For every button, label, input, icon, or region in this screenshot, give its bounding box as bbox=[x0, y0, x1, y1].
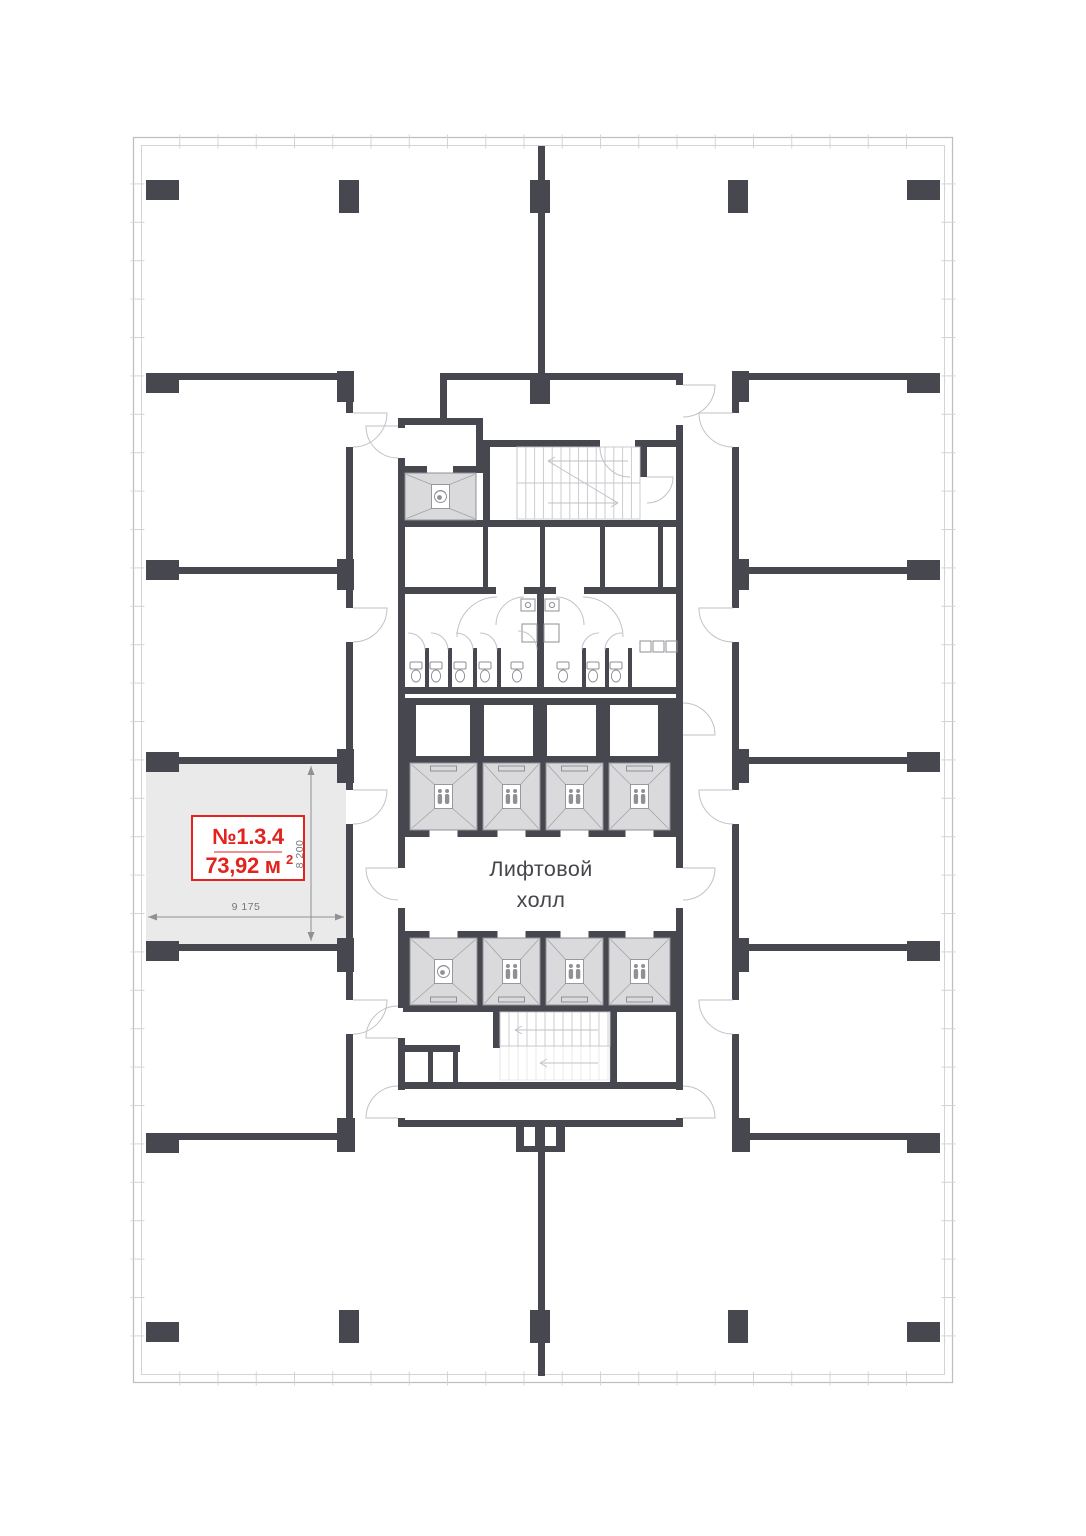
dimension-width: 9 175 bbox=[232, 901, 261, 913]
toilet-tank bbox=[587, 662, 599, 669]
toilet-tank bbox=[479, 662, 491, 669]
dimension-height: 8 200 bbox=[294, 840, 306, 869]
elevator-icon-box bbox=[631, 785, 649, 809]
elevator-shaft bbox=[609, 763, 670, 830]
elevator-passenger-icon bbox=[569, 794, 573, 804]
elevator-passenger-icon bbox=[569, 969, 573, 979]
stairwell-bottom bbox=[500, 1012, 610, 1080]
elevator-passenger-icon bbox=[506, 789, 510, 793]
toilet-tank bbox=[430, 662, 442, 669]
toilet-bowl bbox=[431, 670, 440, 682]
elevator-passenger-icon bbox=[569, 964, 573, 968]
door-arc bbox=[457, 597, 497, 637]
elevator-passenger-icon bbox=[569, 789, 573, 793]
elevator-passenger-icon bbox=[506, 969, 510, 979]
elevator-shaft bbox=[410, 763, 477, 830]
door-arc bbox=[600, 447, 630, 477]
elevator-passenger-icon bbox=[641, 789, 645, 793]
elevator-passenger-icon bbox=[634, 789, 638, 793]
elevator-icon-box bbox=[566, 785, 584, 809]
urinal-icon bbox=[666, 641, 677, 652]
door-arc bbox=[582, 633, 599, 650]
toilet-icon bbox=[511, 662, 523, 682]
urinal-icon bbox=[640, 641, 651, 652]
elevator-passenger-icon bbox=[634, 969, 638, 979]
elevator-icon-box bbox=[566, 960, 584, 984]
door-arc bbox=[353, 608, 387, 642]
center-wall-top bbox=[538, 146, 545, 374]
sink-icon bbox=[521, 599, 535, 611]
center-wall-bottom bbox=[538, 1150, 545, 1376]
unit-number: №1.3.4 bbox=[212, 824, 285, 849]
door-arc bbox=[353, 1000, 387, 1034]
toilet-bowl bbox=[558, 670, 567, 682]
fire-elevator-shaft bbox=[410, 938, 477, 1005]
elevator-shaft bbox=[609, 938, 670, 1005]
toilet-bowl bbox=[588, 670, 597, 682]
toilet-tank bbox=[410, 662, 422, 669]
door-arc bbox=[683, 868, 715, 900]
door-arc bbox=[496, 597, 524, 625]
door-arc bbox=[366, 1006, 398, 1038]
bottom-shaft bbox=[516, 1120, 565, 1152]
elevator-passenger-icon bbox=[634, 794, 638, 804]
elevator-passenger-icon bbox=[576, 969, 580, 979]
vanity-counter bbox=[544, 624, 559, 642]
door-arc bbox=[683, 385, 715, 417]
toilet-bowl bbox=[512, 670, 521, 682]
elevator-passenger-icon bbox=[438, 789, 442, 793]
floor-plan: №1.3.4 73,92 м 2 8 200 9 175 Лифтовой хо… bbox=[0, 0, 1086, 1536]
floor-plan-page: №1.3.4 73,92 м 2 8 200 9 175 Лифтовой хо… bbox=[0, 0, 1086, 1536]
fire-elevator-shaft bbox=[405, 473, 476, 520]
toilet-tank bbox=[557, 662, 569, 669]
toilet-tank bbox=[610, 662, 622, 669]
door-arc bbox=[683, 703, 715, 735]
vanity-counter bbox=[522, 624, 537, 642]
toilet-icon bbox=[410, 662, 422, 682]
elevator-shaft bbox=[483, 763, 540, 830]
door-arc bbox=[556, 597, 584, 625]
door-arc bbox=[699, 413, 733, 447]
sink-drain bbox=[549, 602, 554, 607]
toilet-bowl bbox=[611, 670, 620, 682]
elevator-passenger-icon bbox=[576, 964, 580, 968]
elevator-icon-box bbox=[503, 960, 521, 984]
elevator-shaft bbox=[546, 938, 603, 1005]
elevator-passenger-icon bbox=[506, 964, 510, 968]
elevator-passenger-icon bbox=[513, 969, 517, 979]
elevator-passenger-icon bbox=[445, 789, 449, 793]
elevator-passenger-icon bbox=[641, 964, 645, 968]
toilet-icon bbox=[454, 662, 466, 682]
toilet-bowl bbox=[480, 670, 489, 682]
elevator-icon-box bbox=[435, 785, 453, 809]
elevator-icon-box bbox=[631, 960, 649, 984]
elevator-passenger-icon bbox=[513, 794, 517, 804]
door-arc bbox=[366, 1086, 398, 1118]
unit-area: 73,92 м bbox=[205, 853, 280, 878]
door-arc bbox=[699, 608, 733, 642]
door-arc bbox=[699, 790, 733, 824]
door-arc bbox=[518, 631, 537, 650]
sink-icon bbox=[545, 599, 559, 611]
stairwell-top bbox=[517, 447, 640, 519]
elevator-passenger-icon bbox=[506, 794, 510, 804]
toilet-icon bbox=[430, 662, 442, 682]
elevator-icon-box bbox=[503, 785, 521, 809]
door-arc bbox=[480, 633, 497, 650]
fire-elevator-icon bbox=[437, 495, 442, 500]
door-arc bbox=[366, 868, 398, 900]
toilet-icon bbox=[610, 662, 622, 682]
elevator-passenger-icon bbox=[576, 794, 580, 804]
walls-and-columns bbox=[146, 146, 940, 1376]
elevator-passenger-icon bbox=[513, 789, 517, 793]
toilet-icon bbox=[479, 662, 491, 682]
elevator-passenger-icon bbox=[445, 794, 449, 804]
door-arc bbox=[353, 790, 387, 824]
elevator-passenger-icon bbox=[641, 794, 645, 804]
door-arc bbox=[699, 1000, 733, 1034]
elevator-passenger-icon bbox=[513, 964, 517, 968]
elevator-passenger-icon bbox=[576, 789, 580, 793]
toilet-bowl bbox=[455, 670, 464, 682]
svg-text:Лифтовой: Лифтовой bbox=[489, 857, 592, 881]
unit-area-sup: 2 bbox=[286, 852, 293, 867]
elevator-passenger-icon bbox=[634, 964, 638, 968]
toilet-tank bbox=[511, 662, 523, 669]
elevator-passenger-icon bbox=[641, 969, 645, 979]
door-arc bbox=[408, 633, 425, 650]
sink-basin bbox=[545, 599, 559, 611]
toilet-bowl bbox=[411, 670, 420, 682]
toilet-icon bbox=[557, 662, 569, 682]
elevator-hall-label: Лифтовой холл bbox=[489, 857, 592, 912]
urinal-icon bbox=[653, 641, 664, 652]
door-arc bbox=[431, 633, 448, 650]
door-arc bbox=[683, 1086, 715, 1118]
svg-text:холл: холл bbox=[517, 888, 566, 912]
toilet-tank bbox=[454, 662, 466, 669]
door-arc bbox=[647, 477, 673, 503]
toilet-icon bbox=[587, 662, 599, 682]
elevator-shaft bbox=[546, 763, 603, 830]
door-arc bbox=[583, 597, 623, 637]
unit-label-group[interactable]: №1.3.4 73,92 м 2 bbox=[192, 816, 304, 880]
door-arc bbox=[605, 633, 622, 650]
elevator-shaft bbox=[483, 938, 540, 1005]
sink-basin bbox=[521, 599, 535, 611]
sink-drain bbox=[525, 602, 530, 607]
fire-elevator-icon bbox=[440, 970, 445, 975]
door-arc bbox=[456, 633, 473, 650]
elevator-passenger-icon bbox=[438, 794, 442, 804]
